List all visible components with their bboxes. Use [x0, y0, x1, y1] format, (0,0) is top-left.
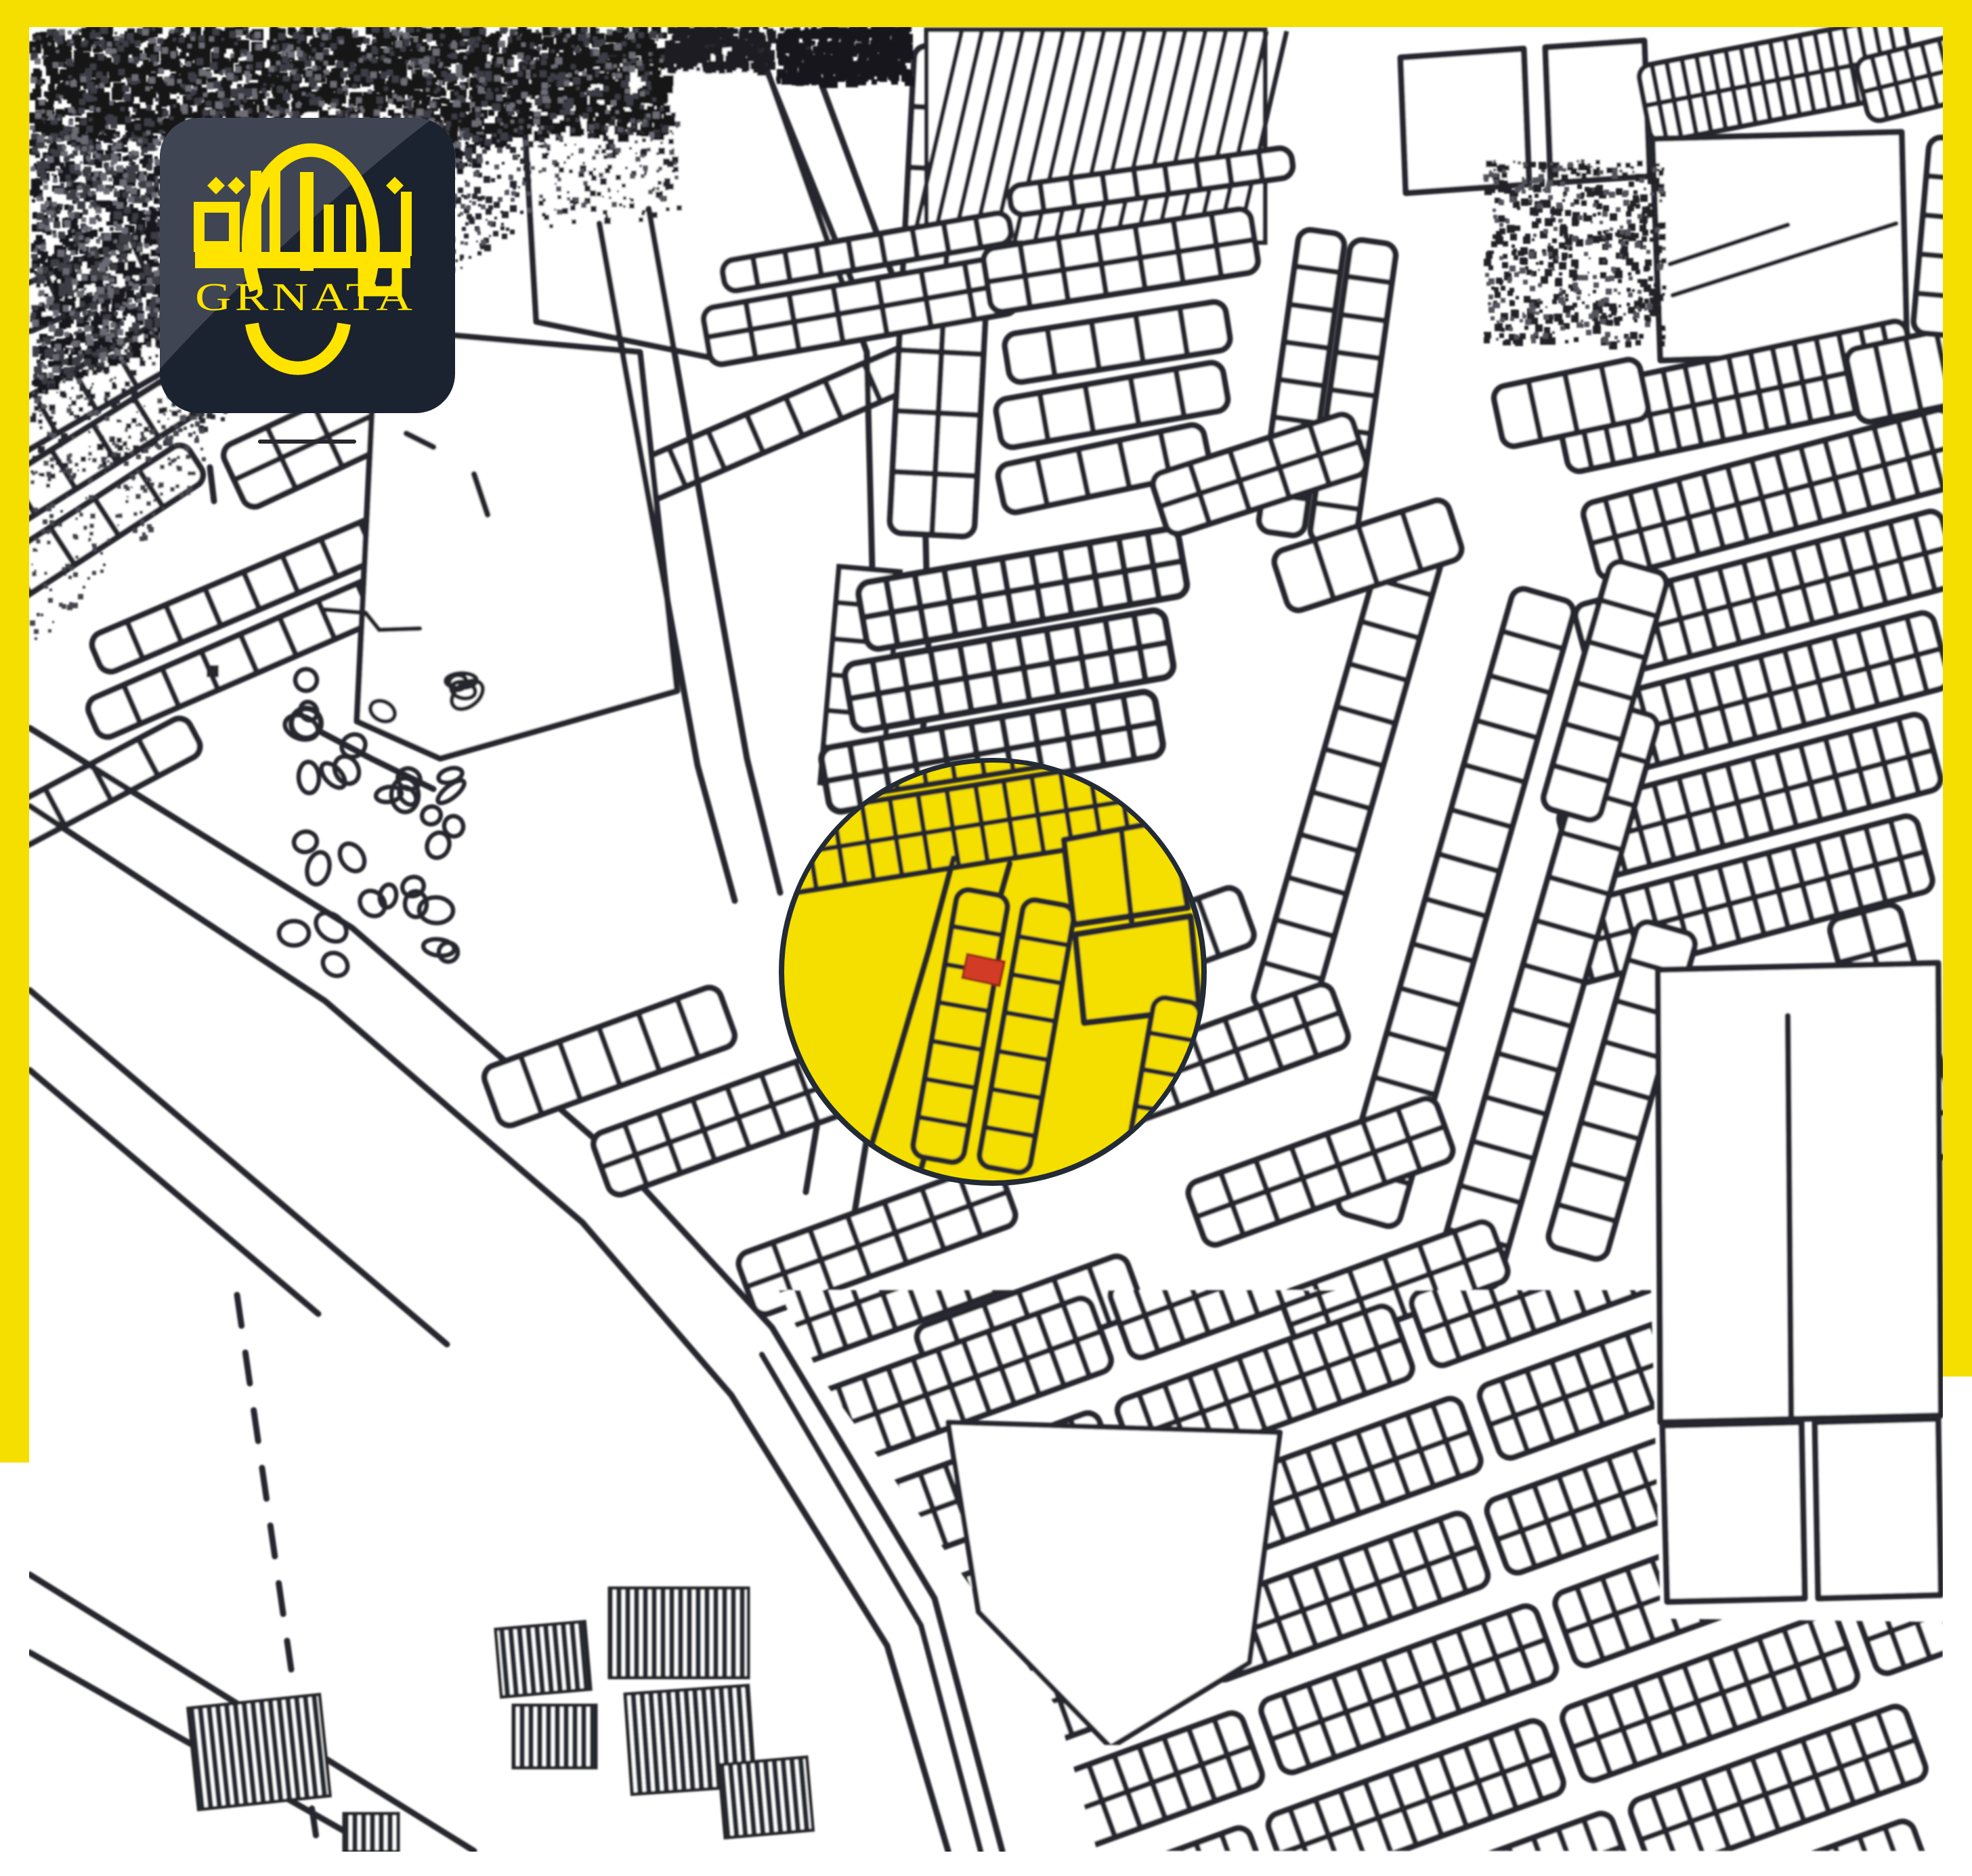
svg-text:GRNATA: GRNATA	[195, 275, 416, 319]
